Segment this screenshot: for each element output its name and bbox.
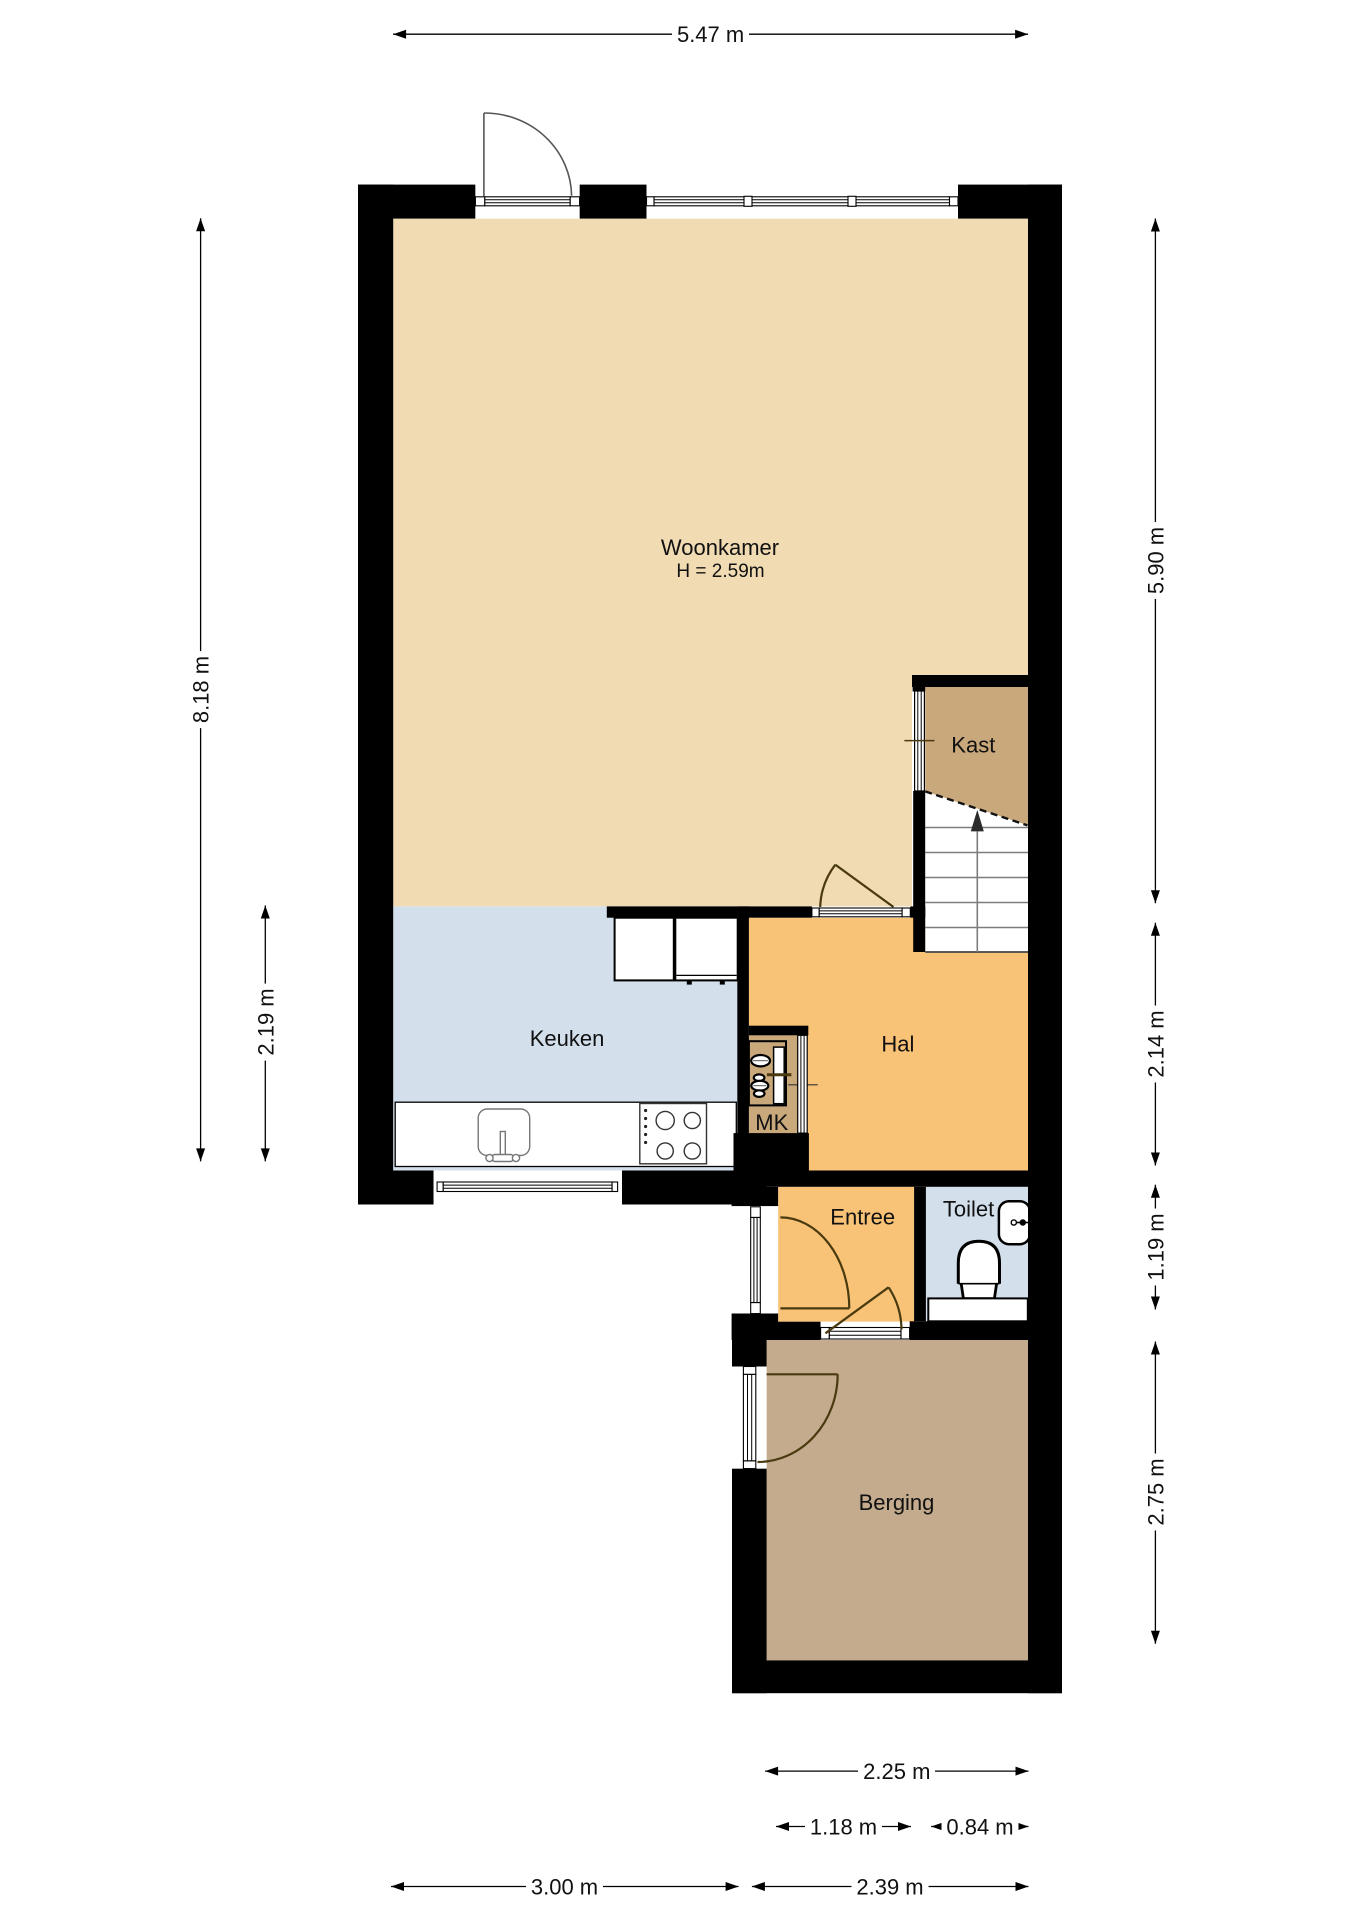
- svg-text:1.18 m: 1.18 m: [810, 1815, 877, 1840]
- svg-text:Toilet: Toilet: [943, 1197, 994, 1222]
- svg-text:2.25 m: 2.25 m: [863, 1759, 930, 1784]
- svg-text:2.19 m: 2.19 m: [253, 988, 278, 1055]
- svg-text:2.75 m: 2.75 m: [1143, 1458, 1168, 1525]
- svg-text:2.39 m: 2.39 m: [856, 1875, 923, 1900]
- svg-text:0.84 m: 0.84 m: [946, 1815, 1013, 1840]
- svg-text:2.14 m: 2.14 m: [1143, 1010, 1168, 1077]
- svg-text:MK: MK: [755, 1110, 788, 1135]
- svg-text:Keuken: Keuken: [530, 1026, 605, 1051]
- svg-text:5.47 m: 5.47 m: [677, 22, 744, 47]
- svg-text:Berging: Berging: [859, 1490, 935, 1515]
- svg-text:Hal: Hal: [881, 1031, 914, 1056]
- svg-text:3.00 m: 3.00 m: [531, 1875, 598, 1900]
- svg-text:Woonkamer: Woonkamer: [661, 535, 779, 560]
- svg-text:8.18 m: 8.18 m: [189, 656, 214, 723]
- svg-text:Entree: Entree: [830, 1204, 895, 1229]
- svg-text:Kast: Kast: [951, 732, 995, 757]
- svg-text:5.90 m: 5.90 m: [1143, 527, 1168, 594]
- svg-text:1.19 m: 1.19 m: [1143, 1213, 1168, 1280]
- svg-text:H = 2.59m: H = 2.59m: [676, 561, 764, 582]
